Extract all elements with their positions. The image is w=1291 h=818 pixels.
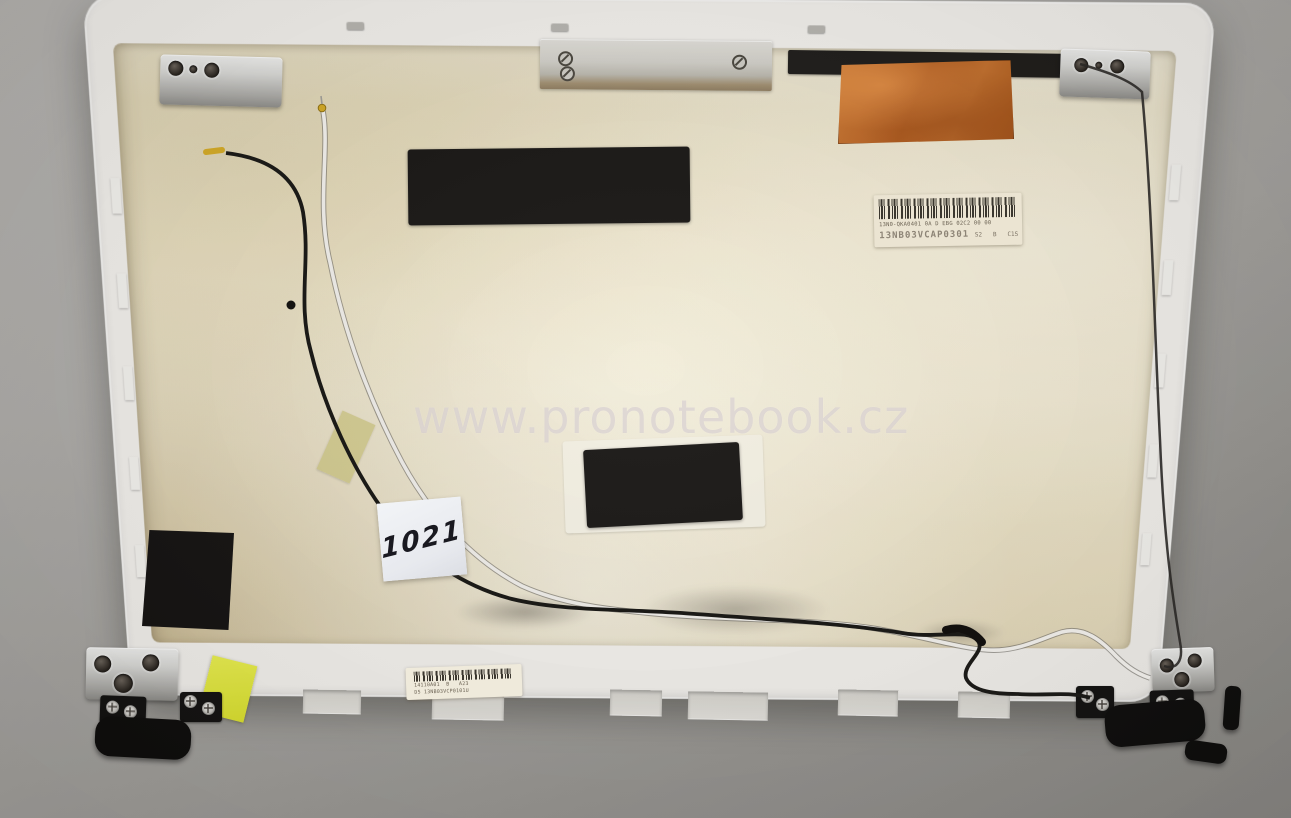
- laptop-back-cover: [82, 0, 1216, 702]
- screw: [202, 702, 215, 715]
- photo-watermark: www.pronotebook.cz: [413, 390, 909, 444]
- top-rim-clip: [346, 22, 364, 30]
- dirt-smudge: [640, 585, 830, 635]
- bottom-left-hinge-mount: [86, 647, 179, 701]
- screw-hole: [1160, 658, 1174, 672]
- screw-hole: [1074, 58, 1088, 72]
- copper-shielding-tape: [838, 60, 1014, 144]
- left-rim-snap-tab: [123, 366, 134, 400]
- part-label-line1: 13N0-QKA0401 0A D EBG 02C2 00 00: [879, 220, 991, 228]
- right-edge-cable: [1080, 64, 1181, 667]
- screw: [1156, 695, 1169, 708]
- sticky-note: 1021: [377, 496, 467, 581]
- barcode: [414, 668, 512, 681]
- hinge-rubber-pad: [1222, 685, 1241, 730]
- left-rim-snap-tab: [110, 178, 122, 214]
- bottom-left-hinge-plate: [180, 692, 222, 722]
- black-foam-pad-large: [408, 147, 691, 226]
- cable-heatshrink: [946, 629, 982, 643]
- top-left-hinge-bracket: [159, 54, 282, 107]
- screw-mark: [560, 66, 575, 81]
- right-rim-snap-tab: [1147, 444, 1158, 477]
- masking-tape-piece: [317, 410, 376, 483]
- top-rim-clip: [807, 25, 825, 33]
- left-rim-snap-tab: [135, 545, 146, 577]
- part-label-line2: 13NB03VCAP0301: [879, 230, 969, 242]
- bottom-right-hinge-plate: [1149, 689, 1194, 721]
- screw-hole: [114, 674, 133, 693]
- ipex-connector-black-cable: [206, 150, 222, 152]
- white-tape-backing: [562, 435, 765, 534]
- screw-hole: [189, 65, 197, 73]
- black-antenna-strip: [788, 50, 1080, 78]
- left-hinge-foot: [94, 716, 192, 761]
- aluminum-foil-tape: [540, 39, 772, 91]
- bottom-rim-cutout: [303, 689, 361, 714]
- left-rim-snap-tab: [117, 273, 128, 308]
- screw-hole: [1110, 59, 1124, 73]
- right-rim-snap-tab: [1154, 354, 1166, 388]
- bottom-rim-cutout: [688, 691, 768, 720]
- left-rim-snap-tab: [129, 457, 140, 490]
- screw-hole: [1174, 672, 1190, 688]
- screw: [124, 705, 137, 718]
- cable-ferrite-blob: [287, 301, 296, 310]
- part-label-suffix: S2 B C1S: [975, 231, 1018, 239]
- screw: [106, 700, 119, 713]
- screw-hole: [1187, 653, 1201, 667]
- screw-hole: [1095, 62, 1102, 69]
- screw: [184, 695, 197, 708]
- ipex-connector-white-cable: [318, 104, 326, 112]
- barcode: [879, 197, 1016, 219]
- top-rim-clip: [551, 23, 569, 31]
- bottom-left-hinge-plate: [100, 695, 147, 725]
- bottom-rim-cutout: [610, 690, 662, 717]
- screw: [1081, 690, 1094, 703]
- right-rim-snap-tab: [1162, 260, 1174, 295]
- bottom-rim-cutout: [958, 691, 1011, 718]
- part-number-label: 13N0-QKA0401 0A D EBG 02C2 00 00 13NB03V…: [874, 193, 1023, 248]
- black-foam-pad-center: [583, 442, 743, 528]
- black-foam-pad-corner: [142, 530, 234, 630]
- right-rim-snap-tab: [1169, 165, 1181, 201]
- screw-mark: [732, 55, 747, 70]
- screw-hole: [94, 655, 111, 672]
- bottom-rim-cutout: [838, 689, 899, 716]
- screw: [1096, 698, 1109, 711]
- screw-hole: [204, 63, 219, 78]
- right-rim-snap-tab: [1140, 533, 1151, 565]
- connector-pigtail: [321, 96, 322, 104]
- right-hinge-foot: [1103, 698, 1206, 749]
- dirt-smudge: [915, 620, 1005, 646]
- yellow-tape-flag: [199, 655, 258, 722]
- screw-hole: [168, 61, 183, 76]
- hinge-rubber-pad: [1184, 739, 1228, 765]
- dirt-smudge: [455, 595, 595, 629]
- screw-hole: [142, 654, 159, 671]
- screw: [1174, 697, 1187, 710]
- small-part-label: 14110A01 B A23 D5 13NB03VCP0101U: [405, 664, 522, 700]
- inner-foil-surface: [113, 43, 1177, 649]
- handwritten-number: 1021: [381, 513, 464, 565]
- bottom-right-hinge-plate: [1076, 686, 1114, 718]
- bottom-right-hinge-mount: [1151, 647, 1214, 693]
- top-right-hinge-bracket: [1059, 48, 1151, 99]
- screw-mark: [558, 51, 573, 66]
- desk-background: 13N0-QKA0401 0A D EBG 02C2 00 00 13NB03V…: [0, 0, 1291, 818]
- small-label-line2: D5 13NB03VCP0101U: [414, 688, 469, 696]
